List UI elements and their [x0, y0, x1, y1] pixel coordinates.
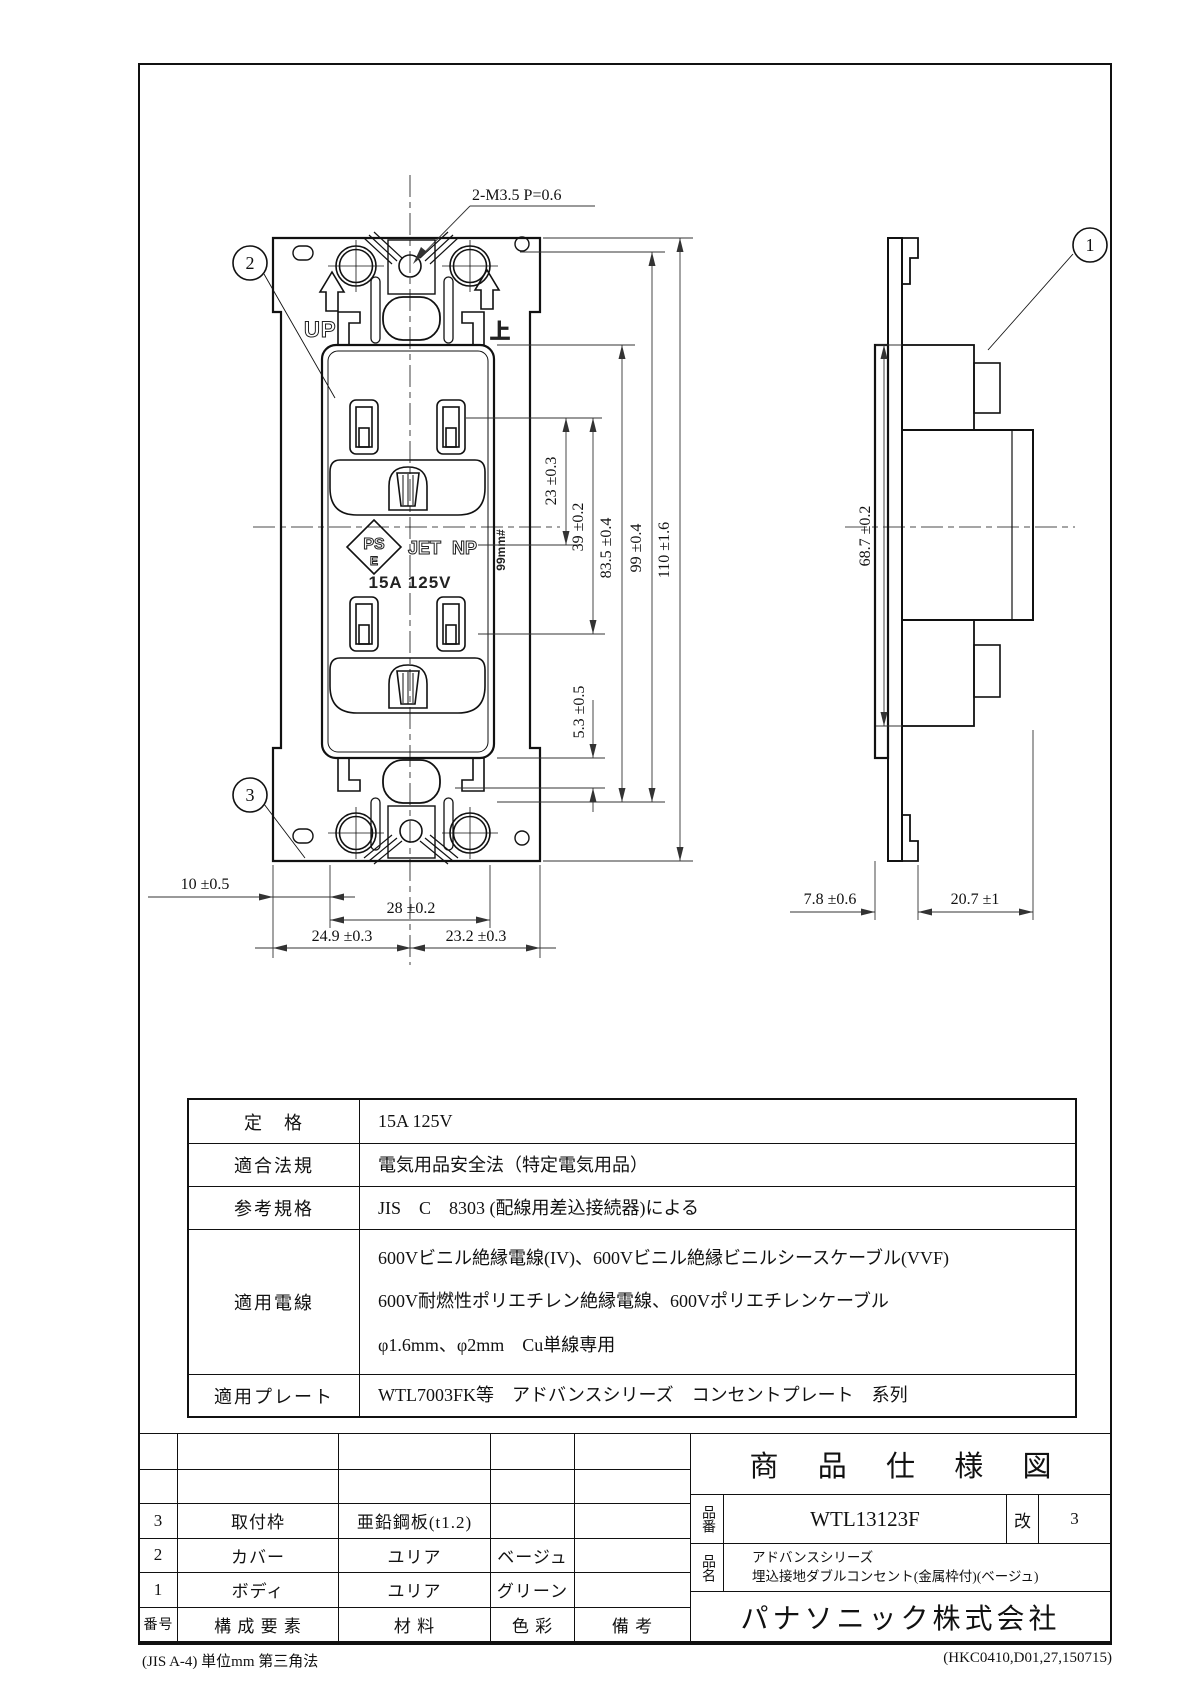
revision-label: 改: [1006, 1495, 1039, 1543]
side-top-tab: [902, 238, 918, 284]
frame-oval-hole: [293, 829, 313, 843]
parts-row-empty: [140, 1434, 690, 1469]
dim-24-9: 24.9 ±0.3: [312, 928, 373, 945]
center-channel: [388, 240, 435, 294]
dim-7-8: 7.8 ±0.6: [804, 891, 857, 908]
side-upper-clamp: [902, 345, 974, 430]
side-body-box: [902, 430, 1033, 620]
side-lower-clamp: [902, 620, 974, 726]
center-channel: [388, 806, 435, 858]
side-frame-plate: [888, 238, 902, 861]
part-number-row: 品番 WTL13123F 改 3: [691, 1494, 1110, 1543]
doc-title: 商 品 仕 様 図: [691, 1434, 1110, 1494]
spec-value: 電気用品安全法（特定電気用品）: [360, 1144, 1075, 1186]
spec-label: 適合法規: [189, 1144, 360, 1186]
parts-header-no: 番号: [140, 1608, 178, 1642]
rating-marking: 15A 125V: [369, 573, 452, 592]
corner-bracket: [338, 312, 360, 345]
side-lower-claw: [974, 645, 1000, 697]
parts-header-color: 色 彩: [491, 1608, 575, 1642]
parts-row-empty: [140, 1469, 690, 1504]
balloon-2-number: 2: [246, 253, 255, 273]
frame-slot: [444, 277, 453, 343]
dim-20-7: 20.7 ±1: [951, 891, 1000, 908]
side-marking: 99mm#: [494, 529, 508, 571]
part-material: ユリア: [339, 1539, 491, 1573]
part-note: [575, 1573, 690, 1607]
part-component: 取付枠: [178, 1504, 339, 1538]
dim-110: 110 ±1.6: [656, 522, 673, 578]
jet-marking: JET: [408, 538, 441, 558]
frame-slot: [371, 277, 380, 343]
footer-right: (HKC0410,D01,27,150715): [700, 1650, 1112, 1667]
part-component: ボディ: [178, 1573, 339, 1607]
parts-header-row: 番号 構 成 要 素 材 料 色 彩 備 考: [140, 1607, 690, 1642]
balloon-1-number: 1: [1086, 235, 1095, 255]
spec-value: JIS C 8303 (配線用差込接続器)による: [360, 1187, 1075, 1229]
spec-row-plate: 適用プレート WTL7003FK等 アドバンスシリーズ コンセントプレート 系列: [189, 1374, 1075, 1416]
product-name-line2: 埋込接地ダブルコンセント(金属枠付)(ベージュ): [752, 1568, 1110, 1586]
frame-small-hole: [515, 831, 529, 845]
product-name-row: 品名 アドバンスシリーズ 埋込接地ダブルコンセント(金属枠付)(ベージュ): [691, 1543, 1110, 1591]
part-no: 2: [140, 1539, 178, 1573]
title-block: 商 品 仕 様 図 品番 WTL13123F 改 3 品名 アドバンスシリーズ …: [690, 1433, 1112, 1643]
parts-row-2: 2 カバー ユリア ベージュ: [140, 1538, 690, 1573]
balloon-3-number: 3: [246, 785, 255, 805]
spec-label: 適用電線: [189, 1230, 360, 1374]
dim-28: 28 ±0.2: [387, 900, 436, 917]
revision-value: 3: [1039, 1495, 1110, 1543]
corner-bracket: [338, 758, 360, 791]
lower-receptacle-slots: [350, 597, 465, 651]
dim-10: 10 ±0.5: [181, 876, 230, 893]
parts-header-material: 材 料: [339, 1608, 491, 1642]
part-component: カバー: [178, 1539, 339, 1573]
np-marking: NP: [452, 538, 477, 558]
spec-label: 参考規格: [189, 1187, 360, 1229]
part-color: ベージュ: [491, 1539, 575, 1573]
company-name: パナソニック株式会社: [691, 1591, 1110, 1641]
part-material: ユリア: [339, 1573, 491, 1607]
technical-drawing: UP 上 PS E JET NP 15A 125V 99mm#: [0, 0, 1190, 1683]
part-no: 3: [140, 1504, 178, 1538]
dim-68-7: 68.7 ±0.2: [857, 506, 874, 567]
dim-83-5: 83.5 ±0.4: [598, 518, 615, 579]
spec-label: 定 格: [189, 1100, 360, 1143]
side-upper-claw: [974, 363, 1000, 413]
side-bottom-tab: [902, 815, 918, 861]
spec-value: WTL7003FK等 アドバンスシリーズ コンセントプレート 系列: [360, 1375, 1075, 1416]
front-view: [253, 175, 560, 965]
spec-row-rating: 定 格 15A 125V: [189, 1100, 1075, 1143]
upper-receptacle-slots: [350, 400, 465, 454]
parts-row-3: 3 取付枠 亜鉛鋼板(t1.2): [140, 1503, 690, 1538]
part-note: [575, 1504, 690, 1538]
frame-slot: [371, 798, 380, 850]
spec-value: 600Vビニル絶縁電線(IV)、600Vビニル絶縁ビニルシースケーブル(VVF)…: [360, 1230, 1075, 1374]
dim-5-3: 5.3 ±0.5: [571, 686, 588, 739]
part-color: グリーン: [491, 1573, 575, 1607]
parts-header-component: 構 成 要 素: [178, 1608, 339, 1642]
side-view: [845, 238, 1075, 861]
corner-bracket: [462, 312, 484, 345]
spec-table: 定 格 15A 125V 適合法規 電気用品安全法（特定電気用品） 参考規格 J…: [187, 1098, 1077, 1418]
spec-row-standard: 参考規格 JIS C 8303 (配線用差込接続器)による: [189, 1186, 1075, 1229]
spec-label: 適用プレート: [189, 1375, 360, 1416]
parts-header-note: 備 考: [575, 1608, 690, 1642]
dimension-labels: 2-M3.5 P=0.6 23 ±0.3 39 ±0.2 5.3 ±0.5 83…: [181, 187, 1000, 945]
spec-sheet-page: UP 上 PS E JET NP 15A 125V 99mm#: [0, 0, 1190, 1683]
oblong-hole: [383, 760, 440, 803]
spec-value: 15A 125V: [360, 1100, 1075, 1143]
product-name-label: 品名: [691, 1544, 724, 1591]
spec-wire-line: 600Vビニル絶縁電線(IV)、600Vビニル絶縁ビニルシースケーブル(VVF): [378, 1237, 1075, 1280]
up-marking: UP: [304, 317, 337, 342]
dim-screw-note: 2-M3.5 P=0.6: [472, 187, 561, 204]
face-markings: UP 上 PS E JET NP 15A 125V 99mm#: [304, 317, 510, 592]
dim-99: 99 ±0.4: [628, 524, 645, 573]
part-color: [491, 1504, 575, 1538]
spec-wire-line: φ1.6mm、φ2mm Cu単線専用: [378, 1324, 1075, 1367]
ue-marking: 上: [490, 320, 510, 343]
spec-row-law: 適合法規 電気用品安全法（特定電気用品）: [189, 1143, 1075, 1186]
part-note: [575, 1539, 690, 1573]
part-number-label: 品番: [691, 1495, 724, 1543]
part-no: 1: [140, 1573, 178, 1607]
spec-row-wires: 適用電線 600Vビニル絶縁電線(IV)、600Vビニル絶縁ビニルシースケーブル…: [189, 1229, 1075, 1374]
ps-marking: PS: [363, 536, 385, 553]
dim-39: 39 ±0.2: [570, 503, 587, 552]
product-name-line1: アドバンスシリーズ: [752, 1549, 1110, 1567]
frame-oval-hole: [293, 246, 313, 260]
spec-wire-line: 600V耐燃性ポリエチレン絶縁電線、600Vポリエチレンケーブル: [378, 1280, 1075, 1323]
part-material: 亜鉛鋼板(t1.2): [339, 1504, 491, 1538]
footer-left: (JIS A-4) 単位mm 第三角法: [142, 1650, 318, 1671]
center-hole: [400, 820, 422, 842]
parts-row-1: 1 ボディ ユリア グリーン: [140, 1572, 690, 1607]
dim-23-2: 23.2 ±0.3: [446, 928, 507, 945]
lower-ground-pin: [389, 665, 427, 708]
dim-23: 23 ±0.3: [543, 457, 560, 506]
e-marking: E: [370, 554, 378, 568]
corner-bracket: [462, 758, 484, 791]
part-number-value: WTL13123F: [724, 1495, 1006, 1543]
side-cover-profile: [875, 345, 888, 758]
upper-ground-pin: [389, 467, 427, 510]
product-name-value: アドバンスシリーズ 埋込接地ダブルコンセント(金属枠付)(ベージュ): [724, 1544, 1110, 1591]
parts-table: 3 取付枠 亜鉛鋼板(t1.2) 2 カバー ユリア ベージュ 1 ボディ ユリ…: [138, 1433, 690, 1643]
oblong-hole: [383, 297, 440, 340]
